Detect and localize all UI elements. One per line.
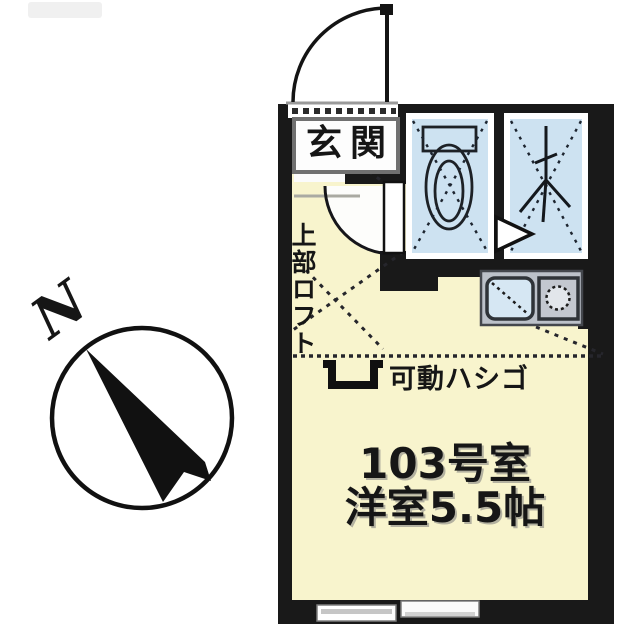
faint-watermark xyxy=(28,2,102,18)
shower-room xyxy=(496,113,588,259)
toilet-room xyxy=(406,113,494,259)
floorplan-canvas: N 玄関 上部ロフト 可動ハシゴ 103号室 洋室5.5帖 xyxy=(0,0,640,640)
movable-ladder-label: 可動ハシゴ xyxy=(389,366,529,393)
kitchen-sink-icon xyxy=(487,278,533,319)
entrance-label: 玄関 xyxy=(294,126,398,162)
kitchen-unit xyxy=(481,271,582,325)
north-compass-icon xyxy=(52,328,232,508)
entrance-door-swing-icon xyxy=(293,4,393,102)
stove-burner-icon xyxy=(539,278,578,319)
room-size-label: 洋室5.5帖 xyxy=(295,487,595,529)
upper-loft-label: 上部ロフト xyxy=(290,222,315,357)
room-number-label: 103号室 xyxy=(300,443,590,485)
